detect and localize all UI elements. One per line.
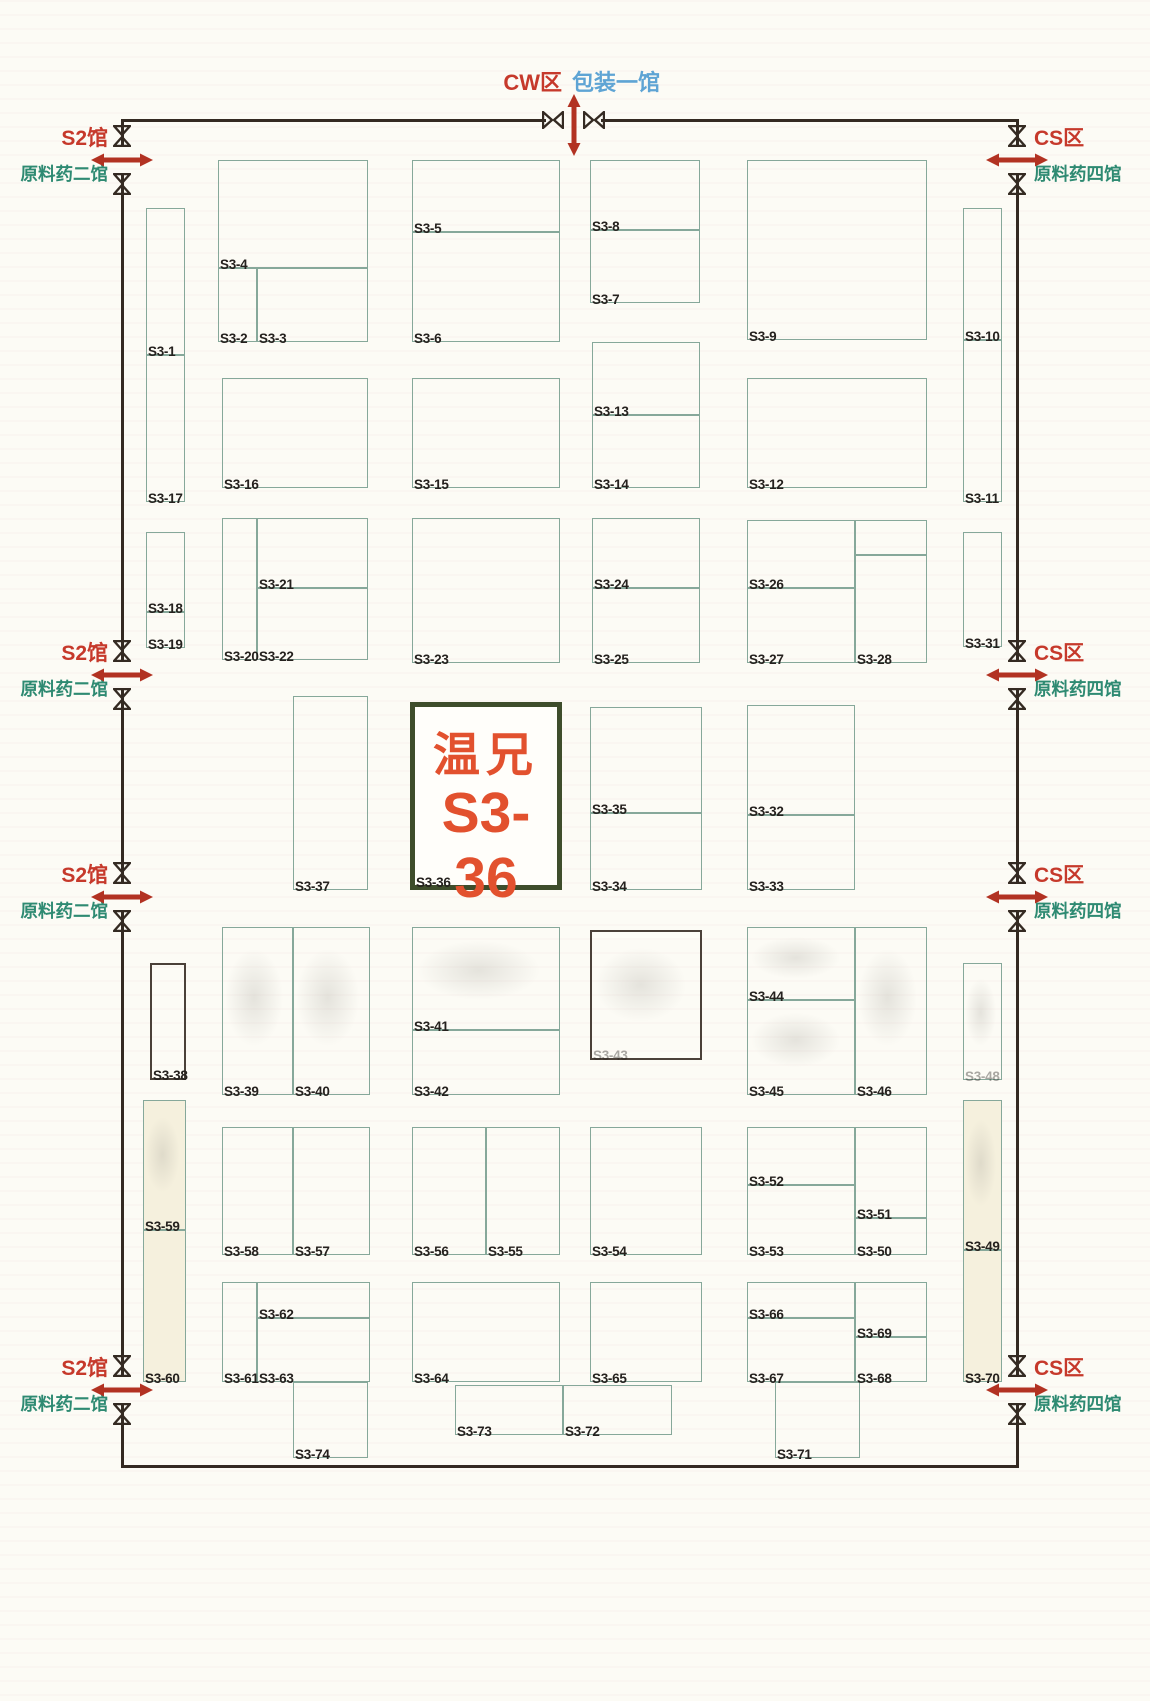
entrance-arrow-icon — [566, 94, 582, 161]
door-icon — [113, 125, 131, 152]
door-icon — [1008, 688, 1026, 715]
entrance-zone-label: CS区 — [1034, 1358, 1084, 1379]
booth-label: S3-1 — [148, 345, 175, 359]
entrance-zone-label: S2馆 — [14, 643, 108, 664]
booth-S3-6: S3-6 — [412, 232, 560, 342]
entrance-zone-label: S2馆 — [14, 1358, 108, 1379]
booth-S3-37: S3-37 — [293, 696, 368, 890]
booth-label: S3-17 — [148, 492, 183, 506]
booth-S3-19: S3-19 — [146, 612, 185, 648]
booth-S3-70: S3-70 — [963, 1250, 1002, 1382]
wall-top — [601, 119, 1019, 122]
booth-S3-27: S3-27 — [747, 588, 855, 663]
booth-label: S3-9 — [749, 330, 776, 344]
booth-label: S3-45 — [749, 1085, 784, 1099]
door-icon — [542, 111, 564, 134]
door-icon — [1008, 910, 1026, 937]
booth-S3-33: S3-33 — [747, 815, 855, 890]
booth-S3-36: 温兄S3-36S3-36 — [410, 702, 562, 890]
door-icon — [113, 173, 131, 200]
booth-S3-23: S3-23 — [412, 518, 560, 663]
booth-label: S3-36 — [416, 876, 451, 890]
door-icon — [1008, 640, 1026, 667]
door-icon — [113, 688, 131, 715]
booth-S3-39: S3-39 — [222, 927, 293, 1095]
booth-S3-10: S3-10 — [963, 208, 1002, 340]
door-icon — [1008, 1355, 1026, 1382]
wall-top — [122, 119, 546, 122]
booth-S3-49: S3-49 — [963, 1100, 1002, 1250]
highlight-booth-code: S3-36 — [415, 781, 557, 912]
door-icon — [1008, 173, 1026, 200]
booth-S3-3: S3-3 — [257, 268, 368, 342]
booth-label: S3-24 — [594, 578, 629, 592]
booth-label: S3-67 — [749, 1372, 784, 1386]
booth-label: S3-14 — [594, 478, 629, 492]
booth-S3-71: S3-71 — [775, 1382, 860, 1458]
booth-S3-44: S3-44 — [747, 927, 855, 1000]
booth-S3-21: S3-21 — [257, 518, 368, 588]
booth-S3-18: S3-18 — [146, 532, 185, 612]
booth-label: S3-26 — [749, 578, 784, 592]
door-icon — [1008, 862, 1026, 889]
booth-S3-5: S3-5 — [412, 160, 560, 232]
booth-label: S3-19 — [148, 638, 183, 652]
entrance-zone-label: CS区 — [1034, 128, 1084, 149]
booth-label: S3-23 — [414, 653, 449, 667]
booth-label: S3-27 — [749, 653, 784, 667]
booth-label: S3-32 — [749, 805, 784, 819]
booth-S3-4: S3-4 — [218, 160, 368, 268]
wall-bottom — [122, 1465, 1019, 1468]
floor-plan: S2馆原料药二馆S2馆原料药二馆S2馆原料药二馆S2馆原料药二馆CS区原料药四馆… — [0, 0, 1150, 1701]
booth-label: S3-63 — [259, 1372, 294, 1386]
booth-label: S3-58 — [224, 1245, 259, 1259]
entrance-zone-label: S2馆 — [14, 128, 108, 149]
booth-label: S3-18 — [148, 602, 183, 616]
booth-S3-65: S3-65 — [590, 1282, 702, 1382]
booth-S3-34: S3-34 — [590, 813, 702, 890]
booth-S3-56: S3-56 — [412, 1127, 486, 1255]
door-icon — [583, 111, 605, 134]
booth-label: S3-71 — [777, 1448, 812, 1462]
booth-S3-24: S3-24 — [592, 518, 700, 588]
booth-S3-66: S3-66 — [747, 1282, 855, 1318]
booth-S3-61: S3-61 — [222, 1282, 257, 1382]
booth-label: S3-56 — [414, 1245, 449, 1259]
booth-label: S3-40 — [295, 1085, 330, 1099]
entrance-zone-label: CW区 — [462, 72, 562, 94]
booth-label: S3-65 — [592, 1372, 627, 1386]
wall-right — [1016, 910, 1019, 1377]
entrance-arrow-icon — [91, 667, 153, 688]
booth-label: S3-28 — [857, 653, 892, 667]
booth-label: S3-51 — [857, 1208, 892, 1222]
booth-S3-63: S3-63 — [257, 1318, 370, 1382]
wall-left — [121, 910, 124, 1377]
booth-label: S3-20 — [224, 650, 259, 664]
booth-S3-31: S3-31 — [963, 532, 1002, 647]
booth-S3-55: S3-55 — [486, 1127, 560, 1255]
door-icon — [113, 640, 131, 667]
booth-label: S3-53 — [749, 1245, 784, 1259]
booth-S3-51: S3-51 — [855, 1127, 927, 1218]
booth-S3-57: S3-57 — [293, 1127, 370, 1255]
entrance-zone-label: CS区 — [1034, 643, 1084, 664]
booth-S3-67: S3-67 — [747, 1318, 855, 1382]
booth-label: S3-68 — [857, 1372, 892, 1386]
booth-label: S3-41 — [414, 1020, 449, 1034]
door-icon — [113, 1355, 131, 1382]
booth-label: S3-4 — [220, 258, 247, 272]
booth-S3-64: S3-64 — [412, 1282, 560, 1382]
booth-label: S3-37 — [295, 880, 330, 894]
booth-label: S3-55 — [488, 1245, 523, 1259]
booth-label: S3-39 — [224, 1085, 259, 1099]
entrance-hall-label: 包装一馆 — [572, 72, 660, 94]
entrance-arrow-icon — [986, 667, 1048, 688]
booth-label: S3-11 — [965, 492, 999, 506]
booth-label: S3-6 — [414, 332, 441, 346]
booth-label: S3-16 — [224, 478, 259, 492]
entrance-arrow-icon — [91, 889, 153, 910]
booth-S3-25: S3-25 — [592, 588, 700, 663]
booth-S3-74: S3-74 — [293, 1382, 368, 1458]
booth-label: S3-42 — [414, 1085, 449, 1099]
booth-label: S3-35 — [592, 803, 627, 817]
booth-label: S3-64 — [414, 1372, 449, 1386]
booth-S3-46: S3-46 — [855, 927, 927, 1095]
booth-S3-50: S3-50 — [855, 1218, 927, 1255]
booth-label: S3-57 — [295, 1245, 330, 1259]
booth-label: S3-22 — [259, 650, 294, 664]
wall-left — [121, 688, 124, 884]
booth-S3-60: S3-60 — [143, 1230, 186, 1382]
booth-label: S3-44 — [749, 990, 784, 1004]
entrance-arrow-icon — [986, 889, 1048, 910]
booth-label: S3-34 — [592, 880, 627, 894]
booth-S3-28: S3-28 — [855, 555, 927, 663]
booth-S3-32: S3-32 — [747, 705, 855, 815]
booth-label: S3-2 — [220, 332, 247, 346]
booth-label: S3-74 — [295, 1448, 330, 1462]
booth-S3-20: S3-20 — [222, 518, 257, 660]
booth-label: S3-38 — [153, 1069, 188, 1083]
booth-label: S3-25 — [594, 653, 629, 667]
booth-label: S3-62 — [259, 1308, 294, 1322]
booth-label: S3-50 — [857, 1245, 892, 1259]
booth-S3-22: S3-22 — [257, 588, 368, 660]
booth-label: S3-69 — [857, 1327, 892, 1341]
booth-S3-54: S3-54 — [590, 1127, 702, 1255]
door-icon — [1008, 125, 1026, 152]
door-icon — [1008, 1403, 1026, 1430]
booth-S3-17: S3-17 — [146, 355, 185, 502]
booth-S3-12: S3-12 — [747, 378, 927, 488]
booth-S3-53: S3-53 — [747, 1185, 855, 1255]
booth-S3-41: S3-41 — [412, 927, 560, 1030]
booth-S3-72: S3-72 — [563, 1385, 672, 1435]
booth-S3-1: S3-1 — [146, 208, 185, 355]
booth-label: S3-15 — [414, 478, 449, 492]
booth-S3-35: S3-35 — [590, 707, 702, 813]
entrance-arrow-icon — [986, 152, 1048, 173]
booth-S3-59: S3-59 — [143, 1100, 186, 1230]
booth-S3-45: S3-45 — [747, 1000, 855, 1095]
wall-left — [121, 173, 124, 662]
highlight-company-name: 温兄 — [415, 729, 557, 781]
entrance-arrow-icon — [91, 1382, 153, 1403]
booth-S3-8: S3-8 — [590, 160, 700, 230]
booth-label: S3-61 — [224, 1372, 259, 1386]
booth-label: S3-3 — [259, 332, 286, 346]
booth-label: S3-49 — [965, 1240, 1000, 1254]
booth-label: S3-12 — [749, 478, 784, 492]
booth-S3-69: S3-69 — [855, 1282, 927, 1337]
booth-label: S3-10 — [965, 330, 1000, 344]
booth-S3-73: S3-73 — [455, 1385, 563, 1435]
booth-S3-11: S3-11 — [963, 340, 1002, 502]
booth-label: S3-13 — [594, 405, 629, 419]
entrance-arrow-icon — [91, 152, 153, 173]
wall-right — [1016, 688, 1019, 884]
booth-S3-68: S3-68 — [855, 1337, 927, 1382]
booth-unlabeled — [855, 520, 927, 555]
booth-S3-16: S3-16 — [222, 378, 368, 488]
booth-label: S3-54 — [592, 1245, 627, 1259]
booth-label: S3-43 — [593, 1049, 628, 1063]
booth-label: S3-73 — [457, 1425, 492, 1439]
door-icon — [113, 910, 131, 937]
booth-S3-26: S3-26 — [747, 520, 855, 588]
booth-label: S3-52 — [749, 1175, 784, 1189]
booth-S3-13: S3-13 — [592, 342, 700, 415]
booth-label: S3-33 — [749, 880, 784, 894]
booth-label: S3-46 — [857, 1085, 892, 1099]
entrance-zone-label: CS区 — [1034, 865, 1084, 886]
booth-label: S3-31 — [965, 637, 1000, 651]
booth-S3-2: S3-2 — [218, 268, 257, 342]
entrance-zone-label: S2馆 — [14, 865, 108, 886]
booth-S3-52: S3-52 — [747, 1127, 855, 1185]
booth-S3-9: S3-9 — [747, 160, 927, 340]
booth-S3-42: S3-42 — [412, 1030, 560, 1095]
booth-S3-48: S3-48 — [963, 963, 1002, 1080]
booth-S3-14: S3-14 — [592, 415, 700, 488]
booth-label: S3-48 — [965, 1070, 1000, 1084]
entrance-arrow-icon — [986, 1382, 1048, 1403]
booth-label: S3-66 — [749, 1308, 784, 1322]
booth-S3-58: S3-58 — [222, 1127, 293, 1255]
booth-label: S3-5 — [414, 222, 441, 236]
booth-label: S3-7 — [592, 293, 619, 307]
booth-label: S3-8 — [592, 220, 619, 234]
wall-right — [1016, 173, 1019, 662]
booth-S3-15: S3-15 — [412, 378, 560, 488]
door-icon — [113, 1403, 131, 1430]
booth-S3-43: S3-43 — [590, 930, 702, 1060]
booth-S3-40: S3-40 — [293, 927, 370, 1095]
booth-label: S3-72 — [565, 1425, 600, 1439]
booth-S3-62: S3-62 — [257, 1282, 370, 1318]
booth-S3-38: S3-38 — [150, 963, 186, 1080]
booth-label: S3-21 — [259, 578, 294, 592]
booth-label: S3-59 — [145, 1220, 180, 1234]
booth-S3-7: S3-7 — [590, 230, 700, 303]
door-icon — [113, 862, 131, 889]
